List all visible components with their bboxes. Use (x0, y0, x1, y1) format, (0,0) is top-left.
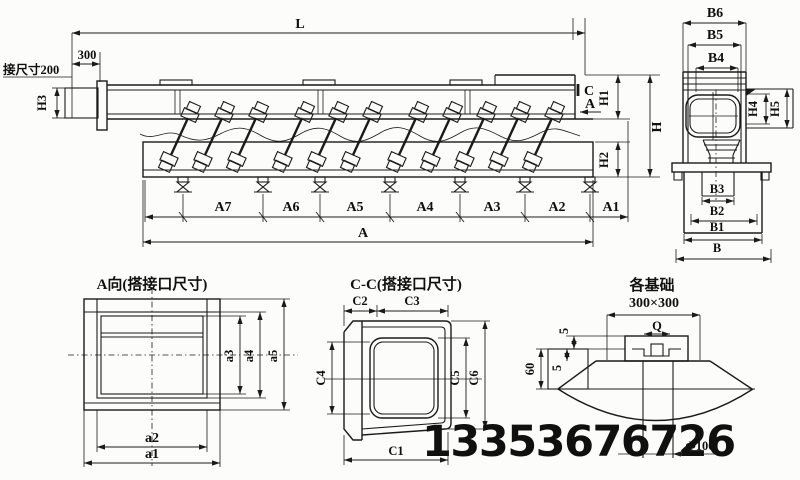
lap-plate: H4 H5 (746, 89, 793, 128)
cc-view-title: C-C(搭接口尺寸) (350, 275, 462, 293)
dim-label-H5: H5 (768, 101, 782, 117)
a-view-body (68, 288, 298, 466)
dim-300: 300 (72, 48, 100, 82)
anchor-plate (625, 336, 688, 361)
dim-a2: a2 (97, 410, 207, 452)
dim-label-60: 60 (523, 363, 537, 376)
engineering-drawing-sheet: L 300 接尺寸200 H3 (0, 0, 800, 480)
dim-label-C3: C3 (404, 294, 419, 308)
dim-label-300: 300 (78, 48, 97, 62)
side-view: L 300 接尺寸200 H3 (3, 17, 665, 247)
dim-label-C4: C4 (314, 370, 328, 386)
dim-label-B2: B2 (710, 204, 725, 218)
dim-chain-A: A7 A6 A5 A4 A3 A2 A1 (145, 121, 628, 222)
dim-label-a2: a2 (145, 431, 159, 446)
end-view: B6 B5 B4 (672, 6, 793, 263)
trough-tab (160, 80, 192, 85)
inlet-note-label: 接尺寸200 (3, 62, 59, 77)
watermark-number: 13353676726 (422, 417, 735, 467)
dim-label-a5: a5 (266, 350, 280, 363)
dim-label-A5: A5 (346, 200, 363, 215)
trough-cross-section (686, 92, 740, 140)
dim-label-H2: H2 (597, 152, 611, 168)
dim-gap-bottom: 5 (550, 349, 567, 371)
dim-label-gap-bottom: 5 (550, 365, 564, 371)
dim-B1: B1 (684, 220, 762, 244)
trough-tab (450, 80, 482, 85)
inlet-note: 接尺寸200 (3, 62, 72, 77)
dim-label-A: A (358, 226, 369, 241)
dim-label-A6: A6 (282, 200, 299, 215)
dim-label-a3: a3 (222, 350, 236, 363)
dim-label-B5: B5 (707, 28, 723, 43)
view-label-A: A (585, 97, 596, 112)
dim-label-B6: B6 (707, 6, 723, 21)
dim-C5: C5 (438, 338, 470, 418)
dim-label-H1: H1 (597, 90, 611, 106)
dim-label-a4: a4 (242, 349, 256, 362)
dim-H3: H3 (35, 88, 66, 118)
dim-depth-60: 60 (523, 349, 548, 389)
dim-label-B4: B4 (708, 51, 724, 66)
dim-label-A3: A3 (483, 200, 500, 215)
dim-label-C6: C6 (467, 370, 481, 385)
dim-label-B: B (713, 241, 721, 255)
trough (107, 75, 593, 119)
pedestal (703, 140, 740, 163)
dim-L: L (72, 17, 585, 118)
dim-label-B1: B1 (710, 220, 725, 234)
drawing-canvas: L 300 接尺寸200 H3 (0, 0, 800, 480)
dim-label-H: H (650, 121, 665, 132)
dim-label-a1: a1 (145, 447, 159, 462)
foundation-title: 各基础 (628, 276, 674, 294)
dim-B3: B3 (702, 182, 734, 205)
dim-label-gap-top: 5 (557, 328, 571, 334)
dim-label-C2: C2 (352, 294, 367, 308)
dim-label-H3: H3 (35, 95, 49, 111)
dim-label-Q: Q (652, 319, 662, 333)
dim-C3: C3 (377, 294, 448, 317)
dim-label-C1: C1 (388, 444, 403, 458)
dim-label-A4: A4 (416, 200, 433, 215)
foundation-size: 300×300 (629, 296, 679, 311)
trough-tab (303, 80, 335, 85)
weld-mark (746, 89, 756, 96)
dim-A-total: A (143, 180, 593, 247)
a-direction-view: A向(搭接口尺寸) a3 a4 (68, 275, 298, 467)
dim-label-A1: A1 (602, 200, 619, 215)
inlet-pipe (65, 81, 107, 130)
leaf-springs (158, 102, 564, 173)
dim-gap-top: 5 (557, 328, 625, 349)
dim-B: B (676, 241, 771, 263)
dim-label-A2: A2 (548, 200, 565, 215)
dim-label-H4: H4 (746, 100, 760, 117)
dim-a3: a3 (203, 316, 246, 394)
dim-label-B3: B3 (710, 182, 725, 196)
dim-label-L: L (295, 17, 304, 32)
dim-label-C5: C5 (448, 370, 462, 385)
dim-Q: Q (644, 319, 670, 334)
anchor-feet (174, 177, 599, 192)
dim-label-A7: A7 (214, 200, 231, 215)
